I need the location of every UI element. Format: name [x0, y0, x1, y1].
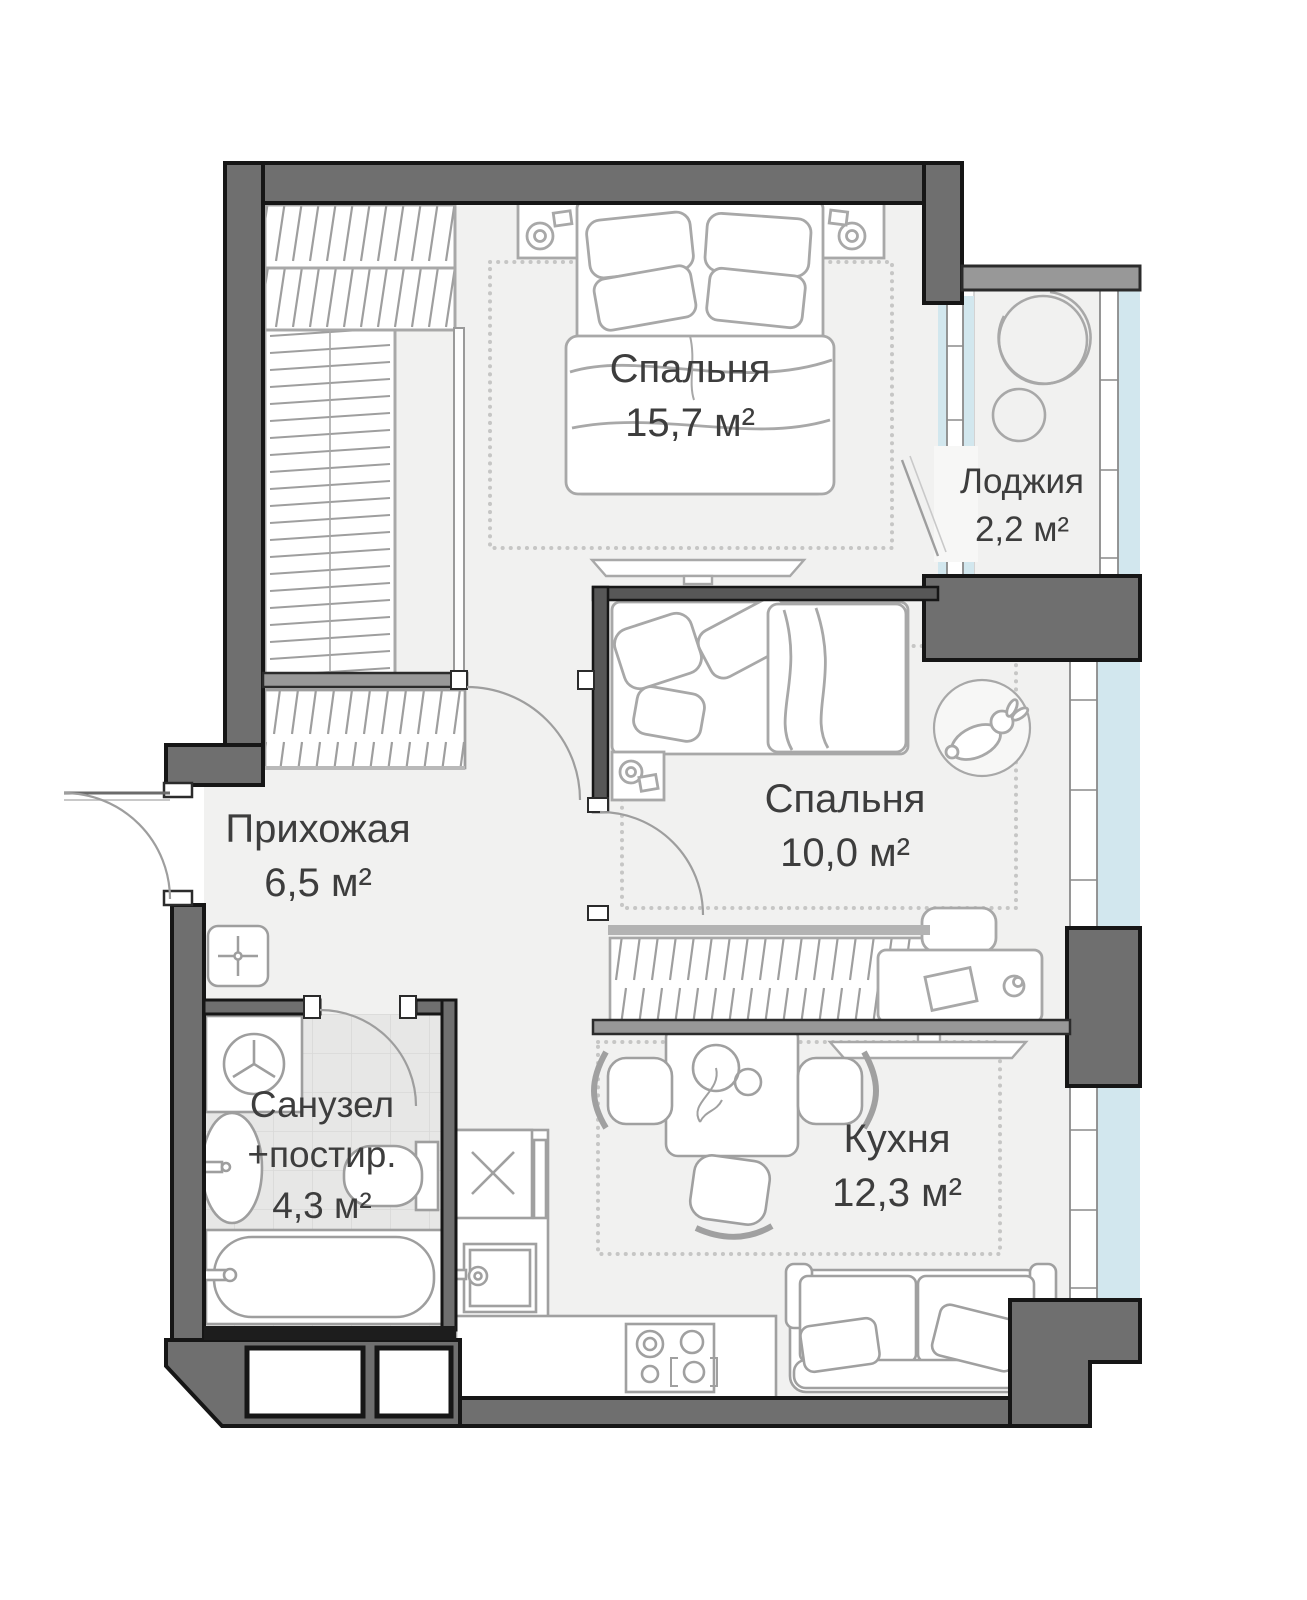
wall-below-loggia: [924, 576, 1140, 660]
nightstand-left: [518, 203, 578, 258]
label-loggia: Лоджия 2,2 м²: [960, 458, 1084, 553]
single-bed: [610, 593, 908, 754]
wardrobe-top: [265, 205, 455, 330]
thin-wall-wardrobe: [454, 328, 464, 675]
wall-bedrooms-divider: [593, 587, 938, 600]
wall-bottom-kitchen: [460, 1398, 1090, 1426]
pouf: [208, 926, 268, 986]
room-name: Кухня: [832, 1112, 962, 1166]
wall-loggia-top: [962, 266, 1140, 290]
room-area: 12,3 м²: [832, 1166, 962, 1220]
floorplan: Спальня 15,7 м² Лоджия 2,2 м² Спальня 10…: [0, 0, 1307, 1600]
dining-table: [666, 1026, 798, 1156]
wall-se-corner: [1010, 1300, 1140, 1426]
window-loggia-east: [1100, 288, 1140, 600]
ventilation-shaft-right: [377, 1348, 451, 1416]
window-bedroom-second-east: [1070, 656, 1140, 928]
wall-bathroom-east: [442, 1000, 456, 1330]
room-name: Лоджия: [960, 458, 1084, 506]
nightstand-second: [612, 752, 664, 800]
hall-wardrobe-bottom-edge: [265, 766, 465, 770]
label-bedroom-second: Спальня 10,0 м²: [765, 772, 926, 881]
room-name: Санузел: [247, 1080, 396, 1130]
room-area: 4,3 м²: [247, 1181, 396, 1231]
room-name-line2: +постир.: [247, 1130, 396, 1180]
hall-wardrobe: [265, 690, 465, 768]
wall-bedroom-second-west: [593, 587, 608, 812]
window-kitchen-east: [1070, 1086, 1140, 1302]
wall-kitchen-north: [593, 1020, 1070, 1034]
floorplan-svg: [0, 0, 1307, 1600]
wall-top: [225, 163, 962, 203]
room-area: 2,2 м²: [960, 506, 1084, 554]
kitchen-counter-bottom: [456, 1316, 776, 1398]
room-name: Спальня: [610, 342, 771, 396]
wall-left-upper: [225, 163, 263, 757]
room-area: 15,7 м²: [610, 396, 771, 450]
wardrobe-back-band: [608, 925, 930, 935]
room-area: 10,0 м²: [765, 826, 926, 880]
wall-east-mid: [1067, 928, 1140, 1086]
entrance-door: [64, 783, 192, 905]
wall-hall-wardrobe-divider: [263, 673, 467, 687]
loggia-floor: [974, 288, 1102, 600]
round-rug-with-toy: [934, 680, 1030, 776]
wardrobe-left-shelves: [265, 330, 395, 675]
wall-ne-corner: [924, 163, 962, 303]
wall-bathroom-south: [204, 1326, 456, 1340]
room-area: 6,5 м²: [225, 856, 410, 910]
wall-left-lower: [172, 905, 204, 1345]
label-bedroom-main: Спальня 15,7 м²: [610, 342, 771, 451]
bathtub: [196, 1230, 442, 1324]
room-name: Спальня: [765, 772, 926, 826]
nightstand-right: [822, 203, 884, 258]
label-bathroom: Санузел +постир. 4,3 м²: [247, 1080, 396, 1231]
room-name: Прихожая: [225, 802, 410, 856]
label-kitchen: Кухня 12,3 м²: [832, 1112, 962, 1221]
wall-entry-jut: [166, 745, 263, 785]
label-hallway: Прихожая 6,5 м²: [225, 802, 410, 911]
wall-bathroom-north-left: [204, 1000, 320, 1014]
ventilation-shaft-left: [247, 1348, 363, 1416]
kitchen-counter-left: [446, 1130, 548, 1318]
